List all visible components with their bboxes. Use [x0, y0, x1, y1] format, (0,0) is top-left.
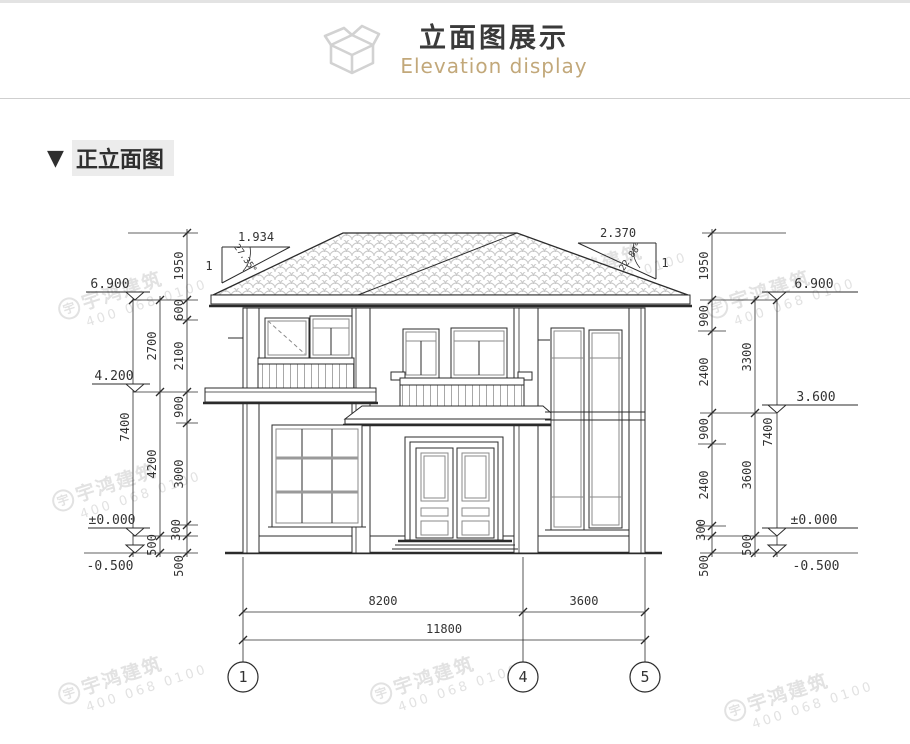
dim-right-500-inner: 500 — [697, 555, 711, 577]
level-left-m0500: -0.500 — [87, 559, 134, 574]
left-balcony-railing — [258, 358, 354, 388]
dim-right-900a: 900 — [697, 305, 711, 327]
level-right-m0500: -0.500 — [793, 559, 840, 574]
elevation-3d-box-icon — [322, 18, 382, 84]
dim-right-500-mid: 500 — [740, 534, 754, 556]
svg-text:宇: 宇 — [61, 684, 77, 702]
triangle-marker-icon: ▼ — [47, 146, 64, 171]
svg-text:宇: 宇 — [373, 684, 389, 702]
dim-right-1950: 1950 — [697, 252, 711, 281]
elevation-drawing: 宇 宇鸿建筑 400 068 0100 宇 宇鸿建筑 400 068 0100 … — [0, 0, 910, 744]
dim-left-500-inner: 500 — [172, 555, 186, 577]
slope-right-base: 1 — [661, 256, 668, 270]
entrance-door — [405, 437, 503, 540]
dim-left-500-mid: 500 — [145, 534, 159, 556]
dim-left-7400: 7400 — [118, 413, 132, 442]
dim-left-900: 900 — [172, 396, 186, 418]
dim-left-3000: 3000 — [172, 460, 186, 489]
dim-bottom-8200: 8200 — [369, 594, 398, 608]
slope-right-ratio: 2.370 — [600, 226, 636, 240]
dim-right-3600: 3600 — [740, 461, 754, 490]
bottom-dimensions: 8200 3600 11800 — [239, 557, 649, 662]
watermark-logo: 宇 — [61, 299, 77, 317]
dim-right-2400b: 2400 — [697, 471, 711, 500]
slope-left-angle: 27.35° — [231, 243, 258, 275]
dim-left-4200: 4200 — [145, 450, 159, 479]
page-header: 立面图展示 Elevation display — [0, 0, 910, 99]
svg-text:宇: 宇 — [55, 491, 71, 509]
dim-right-300: 300 — [694, 519, 708, 541]
eave-fascia — [211, 295, 690, 304]
grid-bubble-5: 5 — [640, 668, 649, 686]
entrance-canopy — [343, 406, 560, 425]
dim-left-600: 600 — [172, 299, 186, 321]
level-right-3600: 3.600 — [796, 390, 835, 405]
dim-left-1950: 1950 — [172, 252, 186, 281]
ground-floor-left-window — [268, 425, 366, 527]
level-left-4200: 4.200 — [94, 369, 133, 384]
slope-left-ratio: 1.934 — [238, 230, 274, 244]
dim-left-300: 300 — [169, 519, 183, 541]
section-title: ▼ 正立面图 — [47, 140, 174, 176]
second-floor-middle-windows — [403, 328, 507, 378]
dim-right-900b: 900 — [697, 418, 711, 440]
dim-bottom-3600: 3600 — [570, 594, 599, 608]
second-floor-left-window — [265, 316, 352, 358]
level-left-0000: ±0.000 — [89, 513, 136, 528]
house-elevation — [203, 233, 692, 553]
section-title-text: 正立面图 — [72, 140, 174, 176]
grid-bubble-4: 4 — [518, 668, 527, 686]
dim-right-2400a: 2400 — [697, 358, 711, 387]
page-subtitle: Elevation display — [400, 54, 587, 78]
level-right-6900: 6.900 — [794, 277, 833, 292]
dim-left-2700: 2700 — [145, 332, 159, 361]
dim-bottom-11800: 11800 — [426, 622, 462, 636]
right-level-markers: 6.900 3.600 ±0.000 -0.500 — [700, 277, 858, 574]
dim-right-7400: 7400 — [761, 418, 775, 447]
level-left-6900: 6.900 — [90, 277, 129, 292]
level-right-0000: ±0.000 — [791, 513, 838, 528]
svg-text:宇: 宇 — [727, 701, 743, 719]
grid-bubble-1: 1 — [238, 668, 247, 686]
dim-left-2100: 2100 — [172, 342, 186, 371]
slope-left-base: 1 — [205, 259, 212, 273]
left-canopy — [203, 388, 378, 403]
dim-right-3300: 3300 — [740, 343, 754, 372]
page-title: 立面图展示 — [419, 23, 569, 54]
